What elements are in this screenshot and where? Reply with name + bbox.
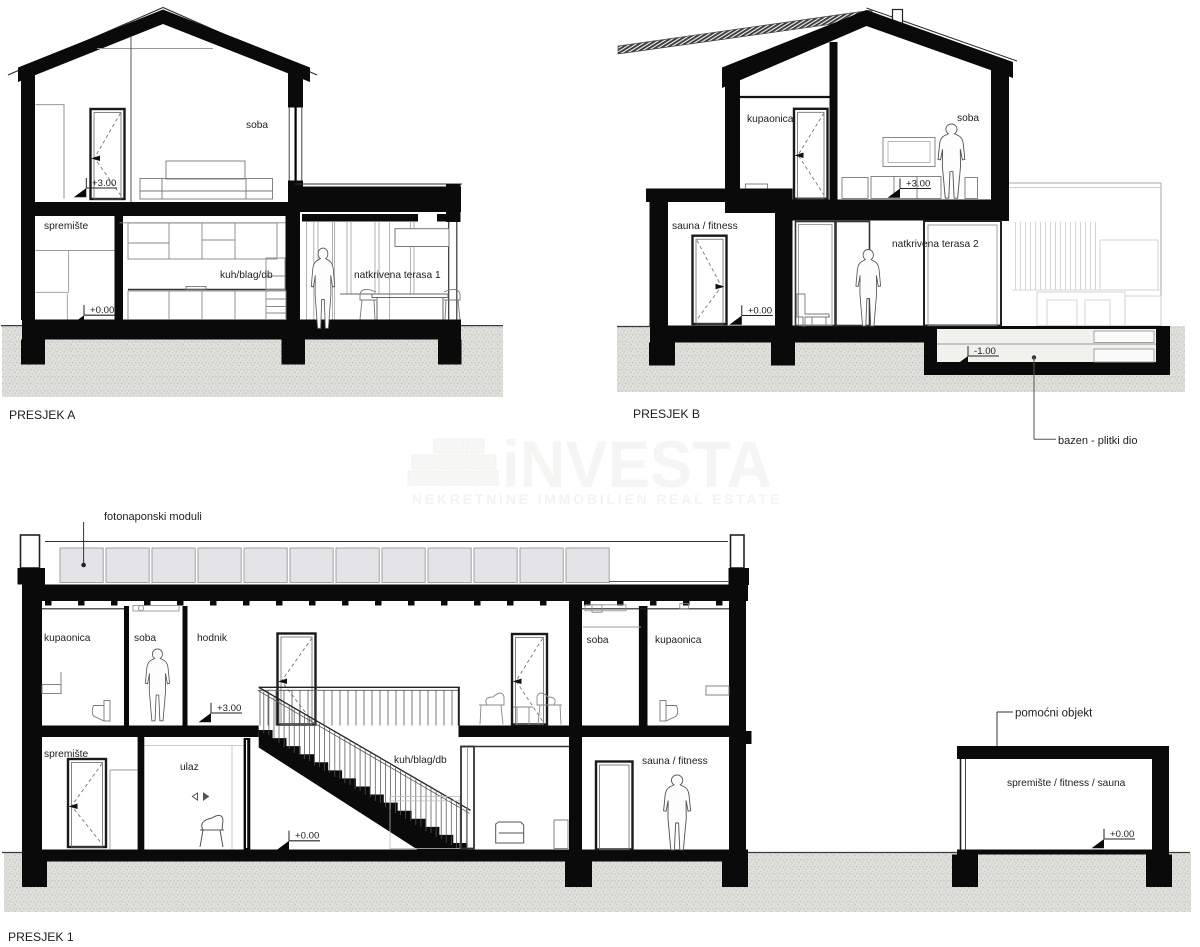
- svg-text:+0.00: +0.00: [1110, 829, 1134, 840]
- svg-text:soba: soba: [587, 635, 609, 646]
- svg-text:kupaonica: kupaonica: [44, 633, 91, 644]
- svg-text:spremište: spremište: [44, 221, 88, 232]
- svg-text:natkrivena terasa 1: natkrivena terasa 1: [354, 270, 441, 281]
- svg-text:+3.00: +3.00: [92, 178, 116, 189]
- svg-text:PRESJEK B: PRESJEK B: [633, 407, 700, 421]
- svg-text:kupaonica: kupaonica: [747, 114, 794, 125]
- svg-text:soba: soba: [134, 633, 156, 644]
- svg-text:+3.00: +3.00: [217, 703, 241, 714]
- svg-text:+0.00: +0.00: [295, 831, 319, 842]
- svg-text:sauna / fitness: sauna / fitness: [672, 221, 738, 232]
- svg-text:fotonaponski moduli: fotonaponski moduli: [104, 511, 202, 523]
- svg-text:+0.00: +0.00: [748, 305, 772, 316]
- svg-text:PRESJEK 1: PRESJEK 1: [8, 930, 74, 944]
- svg-text:soba: soba: [957, 113, 979, 124]
- svg-text:kupaonica: kupaonica: [655, 635, 702, 646]
- svg-text:soba: soba: [246, 120, 268, 131]
- svg-text:NEKRETNINE IMMOBILIEN REAL EST: NEKRETNINE IMMOBILIEN REAL ESTATE: [412, 491, 782, 507]
- svg-text:hodnik: hodnik: [197, 633, 228, 644]
- svg-text:spremište / fitness / sauna: spremište / fitness / sauna: [1007, 778, 1126, 789]
- svg-text:ulaz: ulaz: [180, 762, 199, 773]
- svg-text:kuh/blag/db: kuh/blag/db: [220, 270, 273, 281]
- svg-text:-1.00: -1.00: [974, 346, 996, 357]
- svg-text:+0.00: +0.00: [90, 305, 114, 316]
- svg-text:sauna / fitness: sauna / fitness: [642, 756, 708, 767]
- svg-text:iNVESTA: iNVESTA: [502, 427, 772, 501]
- svg-text:bazen - plitki dio: bazen - plitki dio: [1058, 435, 1138, 447]
- svg-text:kuh/blag/db: kuh/blag/db: [394, 755, 447, 766]
- svg-text:natkrivena terasa 2: natkrivena terasa 2: [892, 239, 979, 250]
- svg-text:pomoćni objekt: pomoćni objekt: [1015, 708, 1093, 720]
- svg-text:+3.00: +3.00: [906, 179, 930, 190]
- svg-text:PRESJEK A: PRESJEK A: [9, 408, 76, 422]
